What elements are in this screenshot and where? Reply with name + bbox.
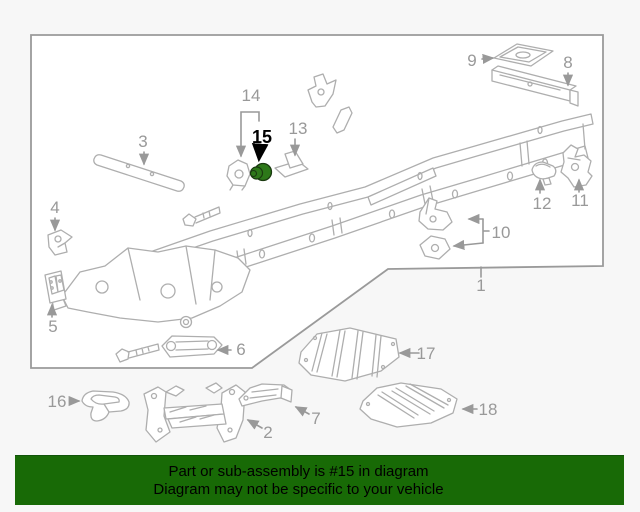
parts-diagram-page: 1 2 3 4 5 6 7 8 9 10 11 12 13 14 15 16 1…: [0, 0, 640, 512]
callout-14[interactable]: 14: [242, 86, 261, 105]
callout-11[interactable]: 11: [571, 191, 589, 210]
part-18-skid-plate: [360, 383, 457, 427]
highlight-banner: Part or sub-assembly is #15 in diagram D…: [15, 455, 624, 505]
callout-15-highlighted[interactable]: 15: [252, 127, 272, 147]
banner-line-1: Part or sub-assembly is #15 in diagram: [168, 463, 428, 481]
callout-12[interactable]: 12: [533, 194, 552, 213]
callout-7[interactable]: 7: [311, 409, 320, 428]
callout-18[interactable]: 18: [479, 400, 498, 419]
callout-4[interactable]: 4: [50, 198, 59, 217]
part-2-crossmember: [144, 383, 245, 442]
callout-16[interactable]: 16: [48, 392, 67, 411]
callout-13[interactable]: 13: [289, 119, 308, 138]
callout-6[interactable]: 6: [236, 340, 245, 359]
callout-8[interactable]: 8: [563, 53, 572, 72]
callout-9[interactable]: 9: [467, 51, 476, 70]
callout-10[interactable]: 10: [492, 223, 511, 242]
callout-5[interactable]: 5: [48, 317, 57, 336]
parts-diagram: 1 2 3 4 5 6 7 8 9 10 11 12 13 14 15 16 1…: [0, 0, 640, 512]
part-7-support: [239, 384, 292, 406]
part-16-tow-hook: [82, 391, 129, 421]
callout-3[interactable]: 3: [138, 132, 147, 151]
callout-1[interactable]: 1: [476, 276, 485, 295]
part-17-skid-plate: [299, 328, 399, 381]
callout-17[interactable]: 17: [417, 344, 436, 363]
callout-2[interactable]: 2: [263, 423, 272, 442]
banner-line-2: Diagram may not be specific to your vehi…: [153, 481, 443, 499]
